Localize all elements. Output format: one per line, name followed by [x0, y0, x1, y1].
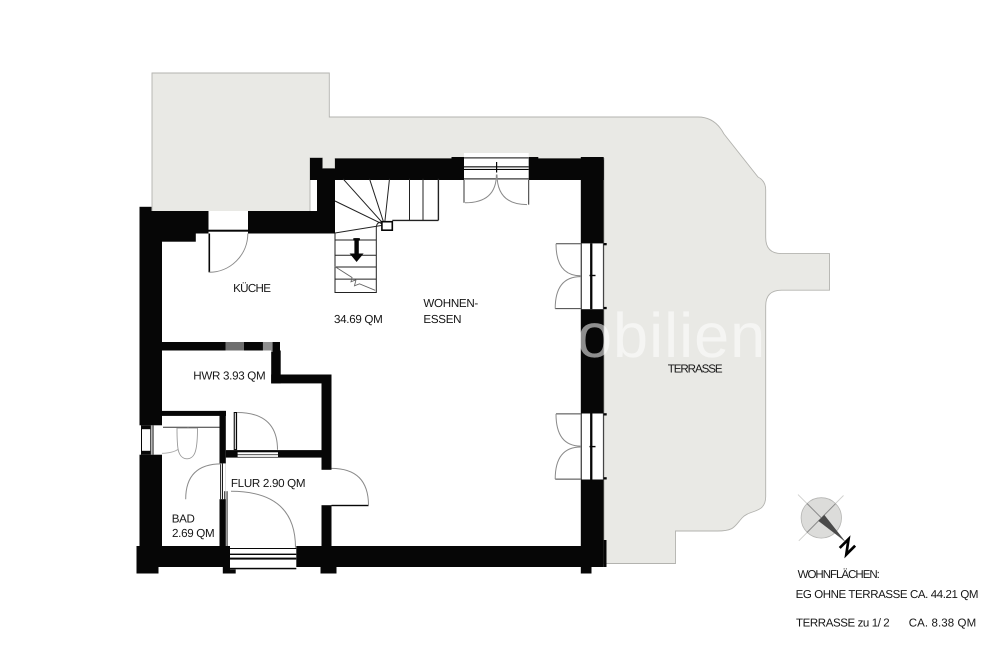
svg-text:TERRASSE: TERRASSE: [668, 363, 723, 376]
svg-text:EG OHNE TERRASSE CA. 44.21 Q: EG OHNE TERRASSE CA. 44.21 QM: [796, 589, 978, 601]
svg-text:ESSEN: ESSEN: [423, 313, 461, 326]
svg-text:WOHNEN-: WOHNEN-: [423, 297, 478, 310]
svg-text:KÜCHE: KÜCHE: [233, 282, 271, 295]
svg-text:obilien: obilien: [577, 301, 766, 371]
svg-text:CA. 8.38 QM: CA. 8.38 QM: [909, 617, 977, 629]
svg-text:FLUR 2.90 QM: FLUR 2.90 QM: [231, 477, 305, 490]
svg-text:WOHNFLÄCHEN:: WOHNFLÄCHEN:: [798, 568, 880, 581]
svg-text:BAD: BAD: [172, 512, 195, 525]
svg-text:TERRASSE zu 1/ 2: TERRASSE zu 1/ 2: [796, 617, 889, 629]
svg-text:2.69 QM: 2.69 QM: [172, 527, 214, 540]
svg-text:HWR 3.93 QM: HWR 3.93 QM: [193, 370, 265, 383]
svg-text:34.69 QM: 34.69 QM: [334, 313, 383, 326]
